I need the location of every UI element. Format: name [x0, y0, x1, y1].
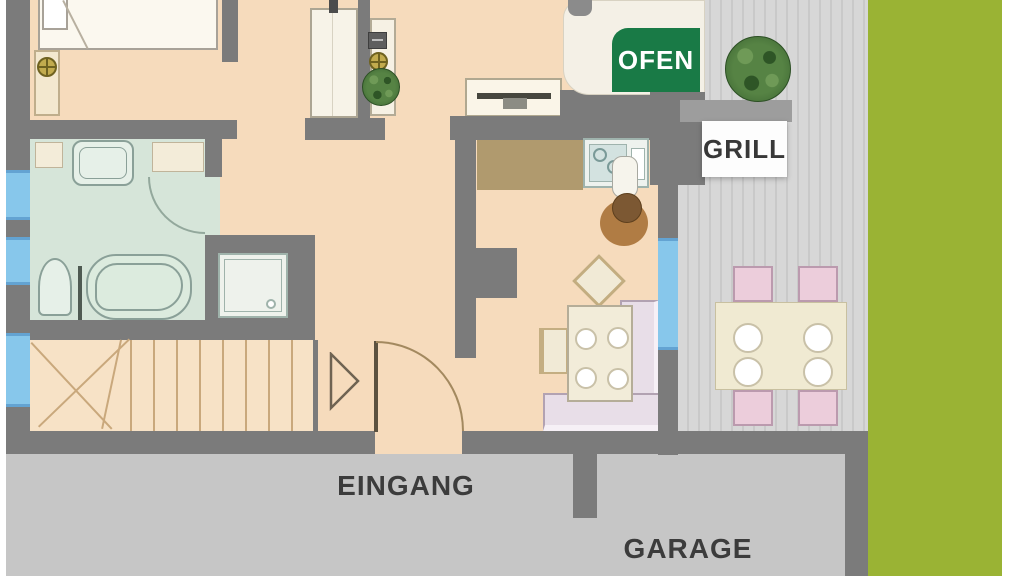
wall-stair-east [313, 340, 318, 431]
terrace-chair [733, 390, 773, 426]
terrace-chair [798, 390, 838, 426]
stair-tread [130, 340, 132, 431]
plate-icon [803, 357, 833, 387]
stair-tread [176, 340, 178, 431]
bedroom-lamp-icon [37, 57, 57, 77]
floor-plan: OFEN GRILL [0, 0, 1024, 576]
wardrobe-handle [329, 0, 338, 13]
window-east [658, 238, 678, 350]
terrace-plant-icon [725, 36, 791, 102]
stair-tread [245, 340, 247, 431]
dining-chair-left [539, 328, 568, 374]
terrace-chair [798, 266, 838, 302]
bathroom-sink [72, 140, 134, 186]
plate-icon [575, 367, 597, 389]
plate-icon [733, 357, 763, 387]
switch-panel-icon [368, 32, 387, 49]
shower [218, 253, 288, 318]
tv-stand [503, 98, 527, 109]
wardrobe [310, 8, 358, 118]
entrance-label-text: EINGANG [337, 470, 475, 502]
plate-icon [607, 327, 629, 349]
garage-label: GARAGE [588, 531, 788, 567]
sink-basin [79, 147, 127, 179]
plate-icon [803, 323, 833, 353]
stair-tread [199, 340, 201, 431]
person-head [612, 193, 642, 223]
window-left-3 [6, 333, 30, 407]
wardrobe-door-line [332, 10, 333, 116]
wall-bedroom-south [30, 120, 237, 139]
oven-label: OFEN [612, 28, 700, 92]
entrance-doorway [375, 431, 462, 454]
stair-tread [153, 340, 155, 431]
grill-label: GRILL [702, 121, 787, 177]
bathtub-basin [95, 263, 183, 311]
wall-bathroom-south [30, 320, 315, 340]
wall-stub-below-wardrobe [305, 118, 385, 140]
stair-winder [38, 339, 130, 428]
stair-winder [101, 340, 122, 429]
garage-label-text: GARAGE [624, 533, 753, 565]
lawn [868, 0, 1002, 576]
stair-tread [222, 340, 224, 431]
window-left-1 [6, 170, 30, 220]
entrance-label: EINGANG [300, 469, 512, 503]
window-left-2 [6, 237, 30, 285]
wall-bedroom-east [222, 0, 238, 62]
terrace-table [715, 302, 847, 390]
stair-direction-arrow-icon [329, 352, 361, 412]
wall-kitchen-west-block [455, 248, 517, 298]
person-body [612, 156, 638, 198]
wall-garage-east [845, 437, 868, 576]
switch-line [372, 39, 383, 41]
dining-table [567, 305, 633, 402]
bathroom-shelf-right [152, 142, 204, 172]
kitchen-counter [477, 140, 583, 190]
stair-tread [291, 340, 293, 431]
stair-winder [31, 342, 113, 430]
hall-plant-icon [362, 68, 400, 106]
bathroom-shelf-left [35, 142, 63, 168]
oven-label-text: OFEN [618, 45, 694, 76]
plate-icon [607, 368, 629, 390]
plate-icon [575, 328, 597, 350]
bathtub [86, 254, 192, 320]
terrace-chair [733, 266, 773, 302]
bathroom-divider [78, 266, 82, 324]
toilet [38, 258, 72, 316]
stair-tread [268, 340, 270, 431]
staircase [30, 340, 313, 431]
grill-label-text: GRILL [703, 134, 786, 165]
plate-icon [733, 323, 763, 353]
wall-bathroom-doorjamb [205, 139, 222, 177]
shower-drain-icon [266, 299, 276, 309]
wall-entrance-stub [573, 431, 597, 518]
person-figure [596, 154, 650, 248]
chimney-stub [568, 0, 592, 16]
grill [680, 100, 792, 122]
